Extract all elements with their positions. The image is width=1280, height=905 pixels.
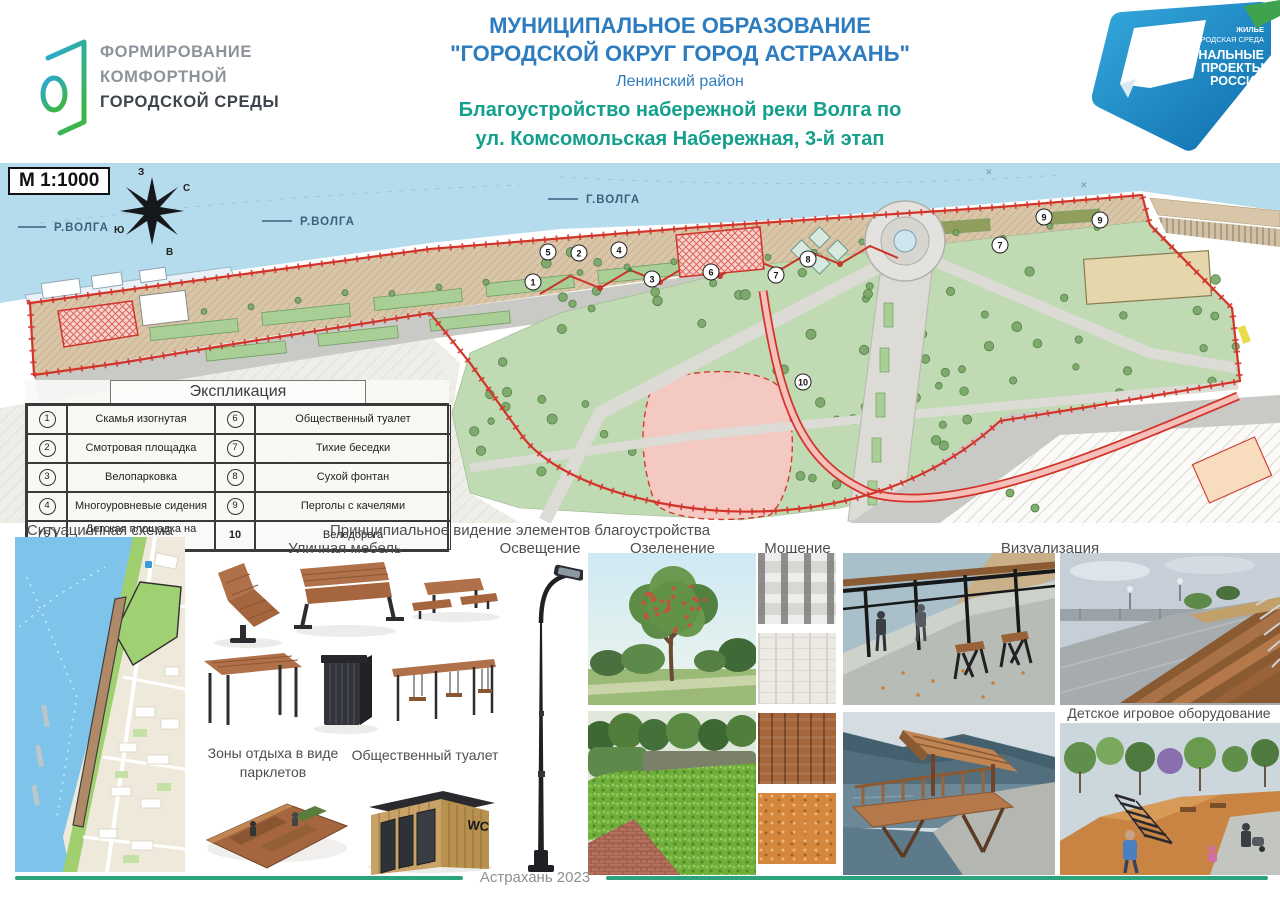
title-project-line1: Благоустройство набережной реки Волга по xyxy=(285,96,1075,125)
viz-photo-1 xyxy=(843,553,1055,705)
viz-photo-3 xyxy=(843,712,1055,875)
map-marker-4: 4 xyxy=(611,242,628,259)
map-marker-6: 6 xyxy=(703,264,720,281)
street-lamp-image xyxy=(498,553,583,875)
np-sector-line1: ЖИЛЬЕ xyxy=(1235,25,1264,34)
map-marker-7: 7 xyxy=(992,237,1009,254)
map-marker-2: 2 xyxy=(571,245,588,262)
legend-item-label: Велопарковка xyxy=(67,463,215,492)
compass-letter: Ю xyxy=(114,225,124,236)
title-city: "ГОРОДСКОЙ ОКРУГ ГОРОД АСТРАХАНЬ" xyxy=(285,40,1075,68)
map-marker-5: 5 xyxy=(540,244,557,261)
map-scale-label: М 1:1000 xyxy=(8,167,110,195)
title-district: Ленинский район xyxy=(285,68,1075,96)
map-marker-9: 9 xyxy=(1036,209,1053,226)
title-project-line2: ул. Комсомольская Набережная, 3-й этап xyxy=(285,125,1075,154)
np-brand-line2: ПРОЕКТЫ xyxy=(1201,61,1264,75)
river-label: Г.ВОЛГА xyxy=(586,194,640,206)
viz-photo-4 xyxy=(1060,723,1280,875)
svg-text:✕: ✕ xyxy=(1080,180,1088,190)
map-marker-8: 8 xyxy=(800,251,817,268)
toilet-image: WC xyxy=(355,775,505,875)
paving-swatch-1 xyxy=(758,553,836,624)
program-logo-line: ГОРОДСКОЙ СРЕДЫ xyxy=(100,90,300,115)
footer-line-left xyxy=(15,876,463,880)
legend-item-number: 1 xyxy=(27,405,67,434)
legend-item-number: 7 xyxy=(215,434,255,463)
paving-swatch-2 xyxy=(758,633,836,704)
paving-swatch-3 xyxy=(758,713,836,784)
kids-equipment-label: Детское игровое оборудование xyxy=(1058,704,1280,723)
svg-text:✕: ✕ xyxy=(985,167,993,177)
principal-vision-label: Принципиальное видение элементов благоус… xyxy=(270,522,770,539)
map-marker-9: 9 xyxy=(1092,212,1109,229)
parklets-label-line1: Зоны отдыха в виде xyxy=(192,744,354,763)
np-sector-line2: И ГОРОДСКАЯ СРЕДА xyxy=(1184,35,1264,44)
legend-item-label: Перголы с качелями xyxy=(255,492,451,521)
legend-item-label: Тихие беседки xyxy=(255,434,451,463)
river-label: Р.ВОЛГА xyxy=(54,222,109,234)
parklets-label-line2: парклетов xyxy=(192,763,354,782)
compass-letter: В xyxy=(166,247,173,258)
poster: ФОРМИРОВАНИЕ КОМФОРТНОЙ ГОРОДСКОЙ СРЕДЫ … xyxy=(0,0,1280,905)
river-label: Р.ВОЛГА xyxy=(300,216,355,228)
compass-letter: З xyxy=(138,167,144,178)
tree-photo xyxy=(588,553,756,705)
compass-letter: С xyxy=(183,183,190,194)
map-marker-7: 7 xyxy=(768,267,785,284)
map-marker-3: 3 xyxy=(644,271,661,288)
poster-title: МУНИЦИПАЛЬНОЕ ОБРАЗОВАНИЕ "ГОРОДСКОЙ ОКР… xyxy=(285,12,1075,154)
legend-item-number: 4 xyxy=(27,492,67,521)
wc-sign: WC xyxy=(467,817,491,834)
legend-item-label: Общественный туалет xyxy=(255,405,451,434)
legend-item-number: 2 xyxy=(27,434,67,463)
legend-item-number: 6 xyxy=(215,405,255,434)
fkgs-logo-icon xyxy=(24,30,96,138)
map-marker-1: 1 xyxy=(525,274,542,291)
map-marker-10: 10 xyxy=(795,374,812,391)
viz-photo-2 xyxy=(1060,553,1280,705)
legend-item-label: Скамья изогнутая xyxy=(67,405,215,434)
legend-item-label: Сухой фонтан xyxy=(255,463,451,492)
legend-item-number: 3 xyxy=(27,463,67,492)
hedge-photo xyxy=(588,711,756,875)
footer-line-right xyxy=(606,876,1268,880)
np-brand-line1: НАЦИОНАЛЬНЫЕ xyxy=(1153,48,1264,62)
legend-item-number: 8 xyxy=(215,463,255,492)
program-logo-text: ФОРМИРОВАНИЕ КОМФОРТНОЙ ГОРОДСКОЙ СРЕДЫ xyxy=(100,40,300,115)
legend-title: Экспликация xyxy=(110,380,366,403)
national-projects-logo: ЖИЛЬЕ И ГОРОДСКАЯ СРЕДА НАЦИОНАЛЬНЫЕ ПРО… xyxy=(1058,0,1280,152)
legend-item-label: Смотровая площадка xyxy=(67,434,215,463)
legend-item-number: 9 xyxy=(215,492,255,521)
footer-text: Астрахань 2023 xyxy=(468,869,602,886)
title-municipality: МУНИЦИПАЛЬНОЕ ОБРАЗОВАНИЕ xyxy=(285,12,1075,40)
paving-samples xyxy=(758,553,836,864)
program-logo-line: КОМФОРТНОЙ xyxy=(100,65,300,90)
parklets-label: Зоны отдыха в виде парклетов xyxy=(192,744,354,782)
np-brand-line3: РОССИИ xyxy=(1210,74,1264,88)
parklet-image xyxy=(195,788,360,873)
situational-map-image xyxy=(15,537,185,872)
master-plan: ✕ ✕ xyxy=(0,163,1280,523)
program-logo-line: ФОРМИРОВАНИЕ xyxy=(100,40,300,65)
legend-item-label: Многоуровневые сидения xyxy=(67,492,215,521)
toilet-label: Общественный туалет xyxy=(350,746,500,765)
paving-swatch-4 xyxy=(758,793,836,864)
street-furniture-image xyxy=(188,553,503,738)
